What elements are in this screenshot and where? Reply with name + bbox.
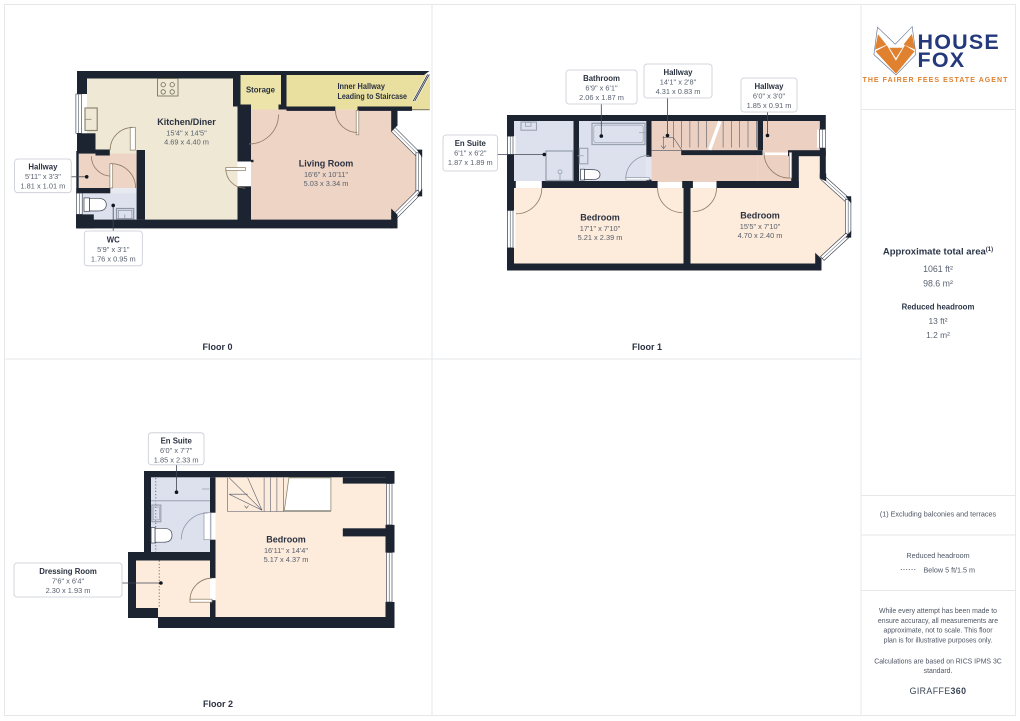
svg-text:FOX: FOX xyxy=(918,48,966,72)
svg-text:Leading to Staircase: Leading to Staircase xyxy=(338,92,408,101)
svg-text:(1) Excluding balconies and te: (1) Excluding balconies and terraces xyxy=(880,509,997,518)
svg-text:Living Room: Living Room xyxy=(299,159,354,169)
svg-text:5.03 x 3.34 m: 5.03 x 3.34 m xyxy=(304,179,349,188)
svg-text:Bedroom: Bedroom xyxy=(266,535,306,545)
svg-text:4.70 x 2.40 m: 4.70 x 2.40 m xyxy=(738,231,783,240)
svg-text:standard.: standard. xyxy=(924,668,953,675)
svg-text:4.69 x 4.40 m: 4.69 x 4.40 m xyxy=(164,137,209,146)
svg-text:Calculations are based on RICS: Calculations are based on RICS IPMS 3C xyxy=(874,658,1002,665)
svg-text:1061 ft²: 1061 ft² xyxy=(923,264,953,274)
svg-text:Bathroom: Bathroom xyxy=(583,74,620,83)
svg-text:approximate, not to scale. Thi: approximate, not to scale. This floor xyxy=(883,628,993,635)
svg-text:Hallway: Hallway xyxy=(28,162,58,171)
svg-text:14'1" x 2'8": 14'1" x 2'8" xyxy=(660,78,697,87)
svg-text:En Suite: En Suite xyxy=(455,139,487,148)
svg-text:13 ft²: 13 ft² xyxy=(928,316,947,326)
svg-text:Reduced headroom: Reduced headroom xyxy=(906,551,969,560)
svg-text:Bedroom: Bedroom xyxy=(580,213,620,223)
svg-text:Below 5 ft/1.5 m: Below 5 ft/1.5 m xyxy=(924,565,976,574)
svg-text:6'1" x 6'2": 6'1" x 6'2" xyxy=(454,149,487,158)
svg-text:5'11" x 3'3": 5'11" x 3'3" xyxy=(25,172,61,181)
svg-text:1.81 x 1.01 m: 1.81 x 1.01 m xyxy=(21,181,66,190)
svg-text:15'4" x 14'5": 15'4" x 14'5" xyxy=(166,128,207,137)
svg-text:THE FAIRER FEES ESTATE AGENT: THE FAIRER FEES ESTATE AGENT xyxy=(863,77,1009,84)
svg-text:1.85 x 0.91 m: 1.85 x 0.91 m xyxy=(747,101,792,110)
svg-text:5.21 x 2.39 m: 5.21 x 2.39 m xyxy=(578,233,623,242)
svg-text:GIRAFFE360: GIRAFFE360 xyxy=(910,686,967,696)
svg-text:Kitchen/Diner: Kitchen/Diner xyxy=(157,117,216,127)
svg-text:WC: WC xyxy=(107,235,120,244)
svg-text:plan is for illustrative purpo: plan is for illustrative purposes only. xyxy=(884,637,993,644)
svg-text:17'1" x 7'10": 17'1" x 7'10" xyxy=(580,224,621,233)
svg-text:6'0" x 7'7": 6'0" x 7'7" xyxy=(160,446,193,455)
svg-text:5.17 x 4.37 m: 5.17 x 4.37 m xyxy=(264,555,309,564)
svg-text:Hallway: Hallway xyxy=(663,68,693,77)
svg-text:Floor 0: Floor 0 xyxy=(202,342,232,352)
svg-text:ensure accuracy, all measureme: ensure accuracy, all measurements are xyxy=(878,618,998,625)
svg-text:15'5" x 7'10": 15'5" x 7'10" xyxy=(740,222,781,231)
svg-text:Floor 1: Floor 1 xyxy=(632,342,662,352)
svg-text:4.31 x 0.83 m: 4.31 x 0.83 m xyxy=(656,87,701,96)
svg-text:While every attempt has been m: While every attempt has been made to xyxy=(879,608,997,615)
svg-text:16'11" x 14'4": 16'11" x 14'4" xyxy=(264,546,308,555)
svg-text:Reduced headroom: Reduced headroom xyxy=(902,302,975,311)
svg-text:2.06 x 1.87 m: 2.06 x 1.87 m xyxy=(579,93,624,102)
svg-text:Inner Hallway: Inner Hallway xyxy=(338,82,386,91)
svg-text:Storage: Storage xyxy=(246,85,276,94)
svg-text:Hallway: Hallway xyxy=(754,82,784,91)
svg-text:Bedroom: Bedroom xyxy=(740,211,780,221)
svg-text:En Suite: En Suite xyxy=(161,436,193,445)
svg-text:2.30 x 1.93 m: 2.30 x 1.93 m xyxy=(46,586,91,595)
svg-text:1.76 x 0.95 m: 1.76 x 0.95 m xyxy=(91,254,136,263)
svg-text:98.6 m²: 98.6 m² xyxy=(923,279,953,289)
svg-text:16'6" x 10'11": 16'6" x 10'11" xyxy=(304,170,348,179)
svg-text:1.85 x 2.33 m: 1.85 x 2.33 m xyxy=(154,455,199,464)
svg-text:Approximate total area(1): Approximate total area(1) xyxy=(883,247,993,258)
svg-text:1.2 m²: 1.2 m² xyxy=(926,330,950,340)
svg-text:5'9" x 3'1": 5'9" x 3'1" xyxy=(97,245,130,254)
svg-text:7'6" x 6'4": 7'6" x 6'4" xyxy=(52,577,85,586)
svg-text:6'0" x 3'0": 6'0" x 3'0" xyxy=(753,92,786,101)
svg-text:6'9" x 6'1": 6'9" x 6'1" xyxy=(585,84,618,93)
svg-text:1.87 x 1.89 m: 1.87 x 1.89 m xyxy=(448,158,493,167)
svg-text:Dressing Room: Dressing Room xyxy=(39,567,97,576)
svg-text:Floor 2: Floor 2 xyxy=(203,699,233,709)
